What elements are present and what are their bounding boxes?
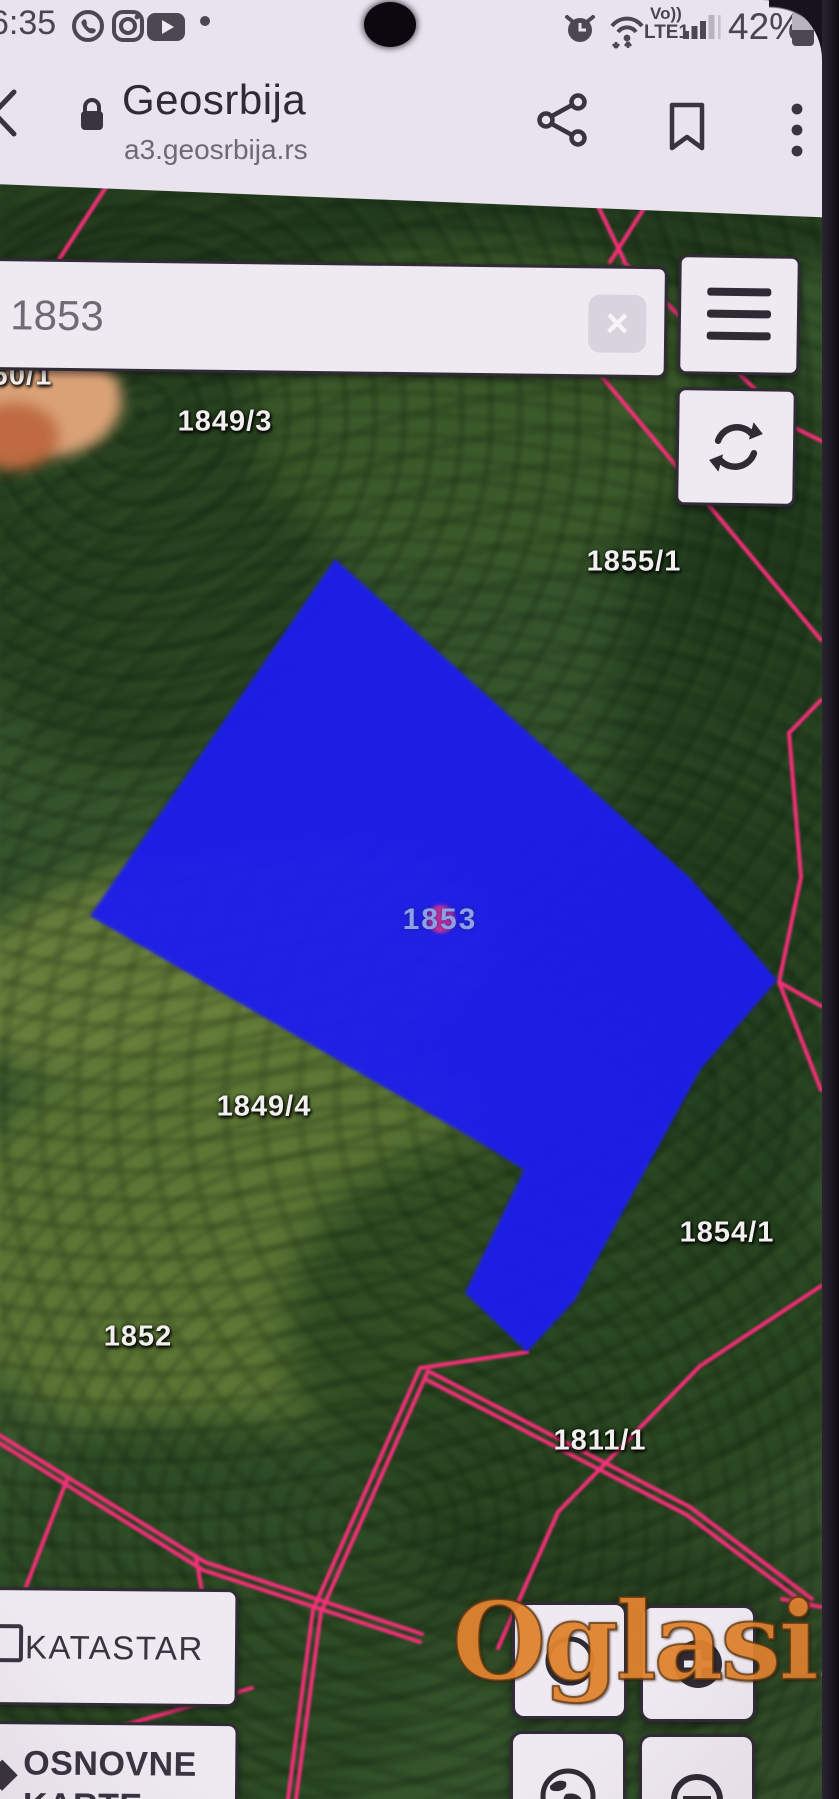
refresh-map-button[interactable] — [675, 387, 797, 507]
parcel-centroid-marker — [427, 905, 455, 933]
search-input-value[interactable]: 1853 — [10, 291, 104, 340]
clock-time: 6:35 — [0, 4, 56, 43]
hamburger-icon — [707, 288, 771, 297]
layer-square-icon — [0, 1624, 23, 1662]
instagram-icon — [110, 8, 146, 44]
viber-icon — [70, 8, 106, 44]
bookmark-icon[interactable] — [668, 102, 706, 152]
youtube-icon — [146, 12, 186, 42]
selected-parcel-polygon[interactable] — [90, 559, 777, 1352]
basemap-globe-button[interactable] — [510, 1731, 626, 1799]
katastar-label: KATASTAR — [25, 1628, 204, 1668]
alarm-clock-icon — [563, 11, 597, 45]
camera-punch-hole — [364, 2, 416, 47]
oglasi-watermark: Oglasi.rs — [452, 1588, 822, 1696]
phone-photo: 60/11849/31855/118531849/41854/118521811… — [0, 0, 839, 1799]
page-title[interactable]: Geosrbija — [122, 76, 306, 124]
overflow-menu-icon[interactable] — [790, 102, 804, 158]
katastar-layer-button[interactable]: KATASTAR — [0, 1587, 239, 1707]
osnovne-karte-label: OSNOVNE KARTE — [23, 1742, 197, 1799]
refresh-icon — [705, 416, 768, 479]
top-panel: 6:35 — [0, 0, 822, 222]
signal-bars-icon — [683, 12, 723, 42]
phone-screen: 60/11849/31855/118531849/41854/118521811… — [0, 0, 822, 1799]
globe-icon — [536, 1764, 600, 1799]
page-url[interactable]: a3.geosrbija.rs — [124, 134, 308, 166]
back-chevron-icon[interactable] — [0, 88, 18, 138]
lock-icon — [76, 96, 108, 134]
parcel-search-bar[interactable]: 1853 × — [0, 258, 668, 378]
notification-dot — [200, 16, 210, 26]
volte-label: Vo)) — [650, 4, 682, 24]
phone-bezel-edge — [822, 0, 839, 1799]
osnovne-karte-layer-button[interactable]: OSNOVNE KARTE — [0, 1721, 239, 1799]
share-icon[interactable] — [536, 92, 588, 148]
clear-search-button[interactable]: × — [588, 294, 647, 353]
restricted-icon — [666, 1769, 728, 1799]
map-menu-button[interactable] — [677, 254, 801, 376]
restrictions-layer-button[interactable] — [639, 1734, 755, 1799]
layer-diamond-icon — [0, 1760, 18, 1791]
